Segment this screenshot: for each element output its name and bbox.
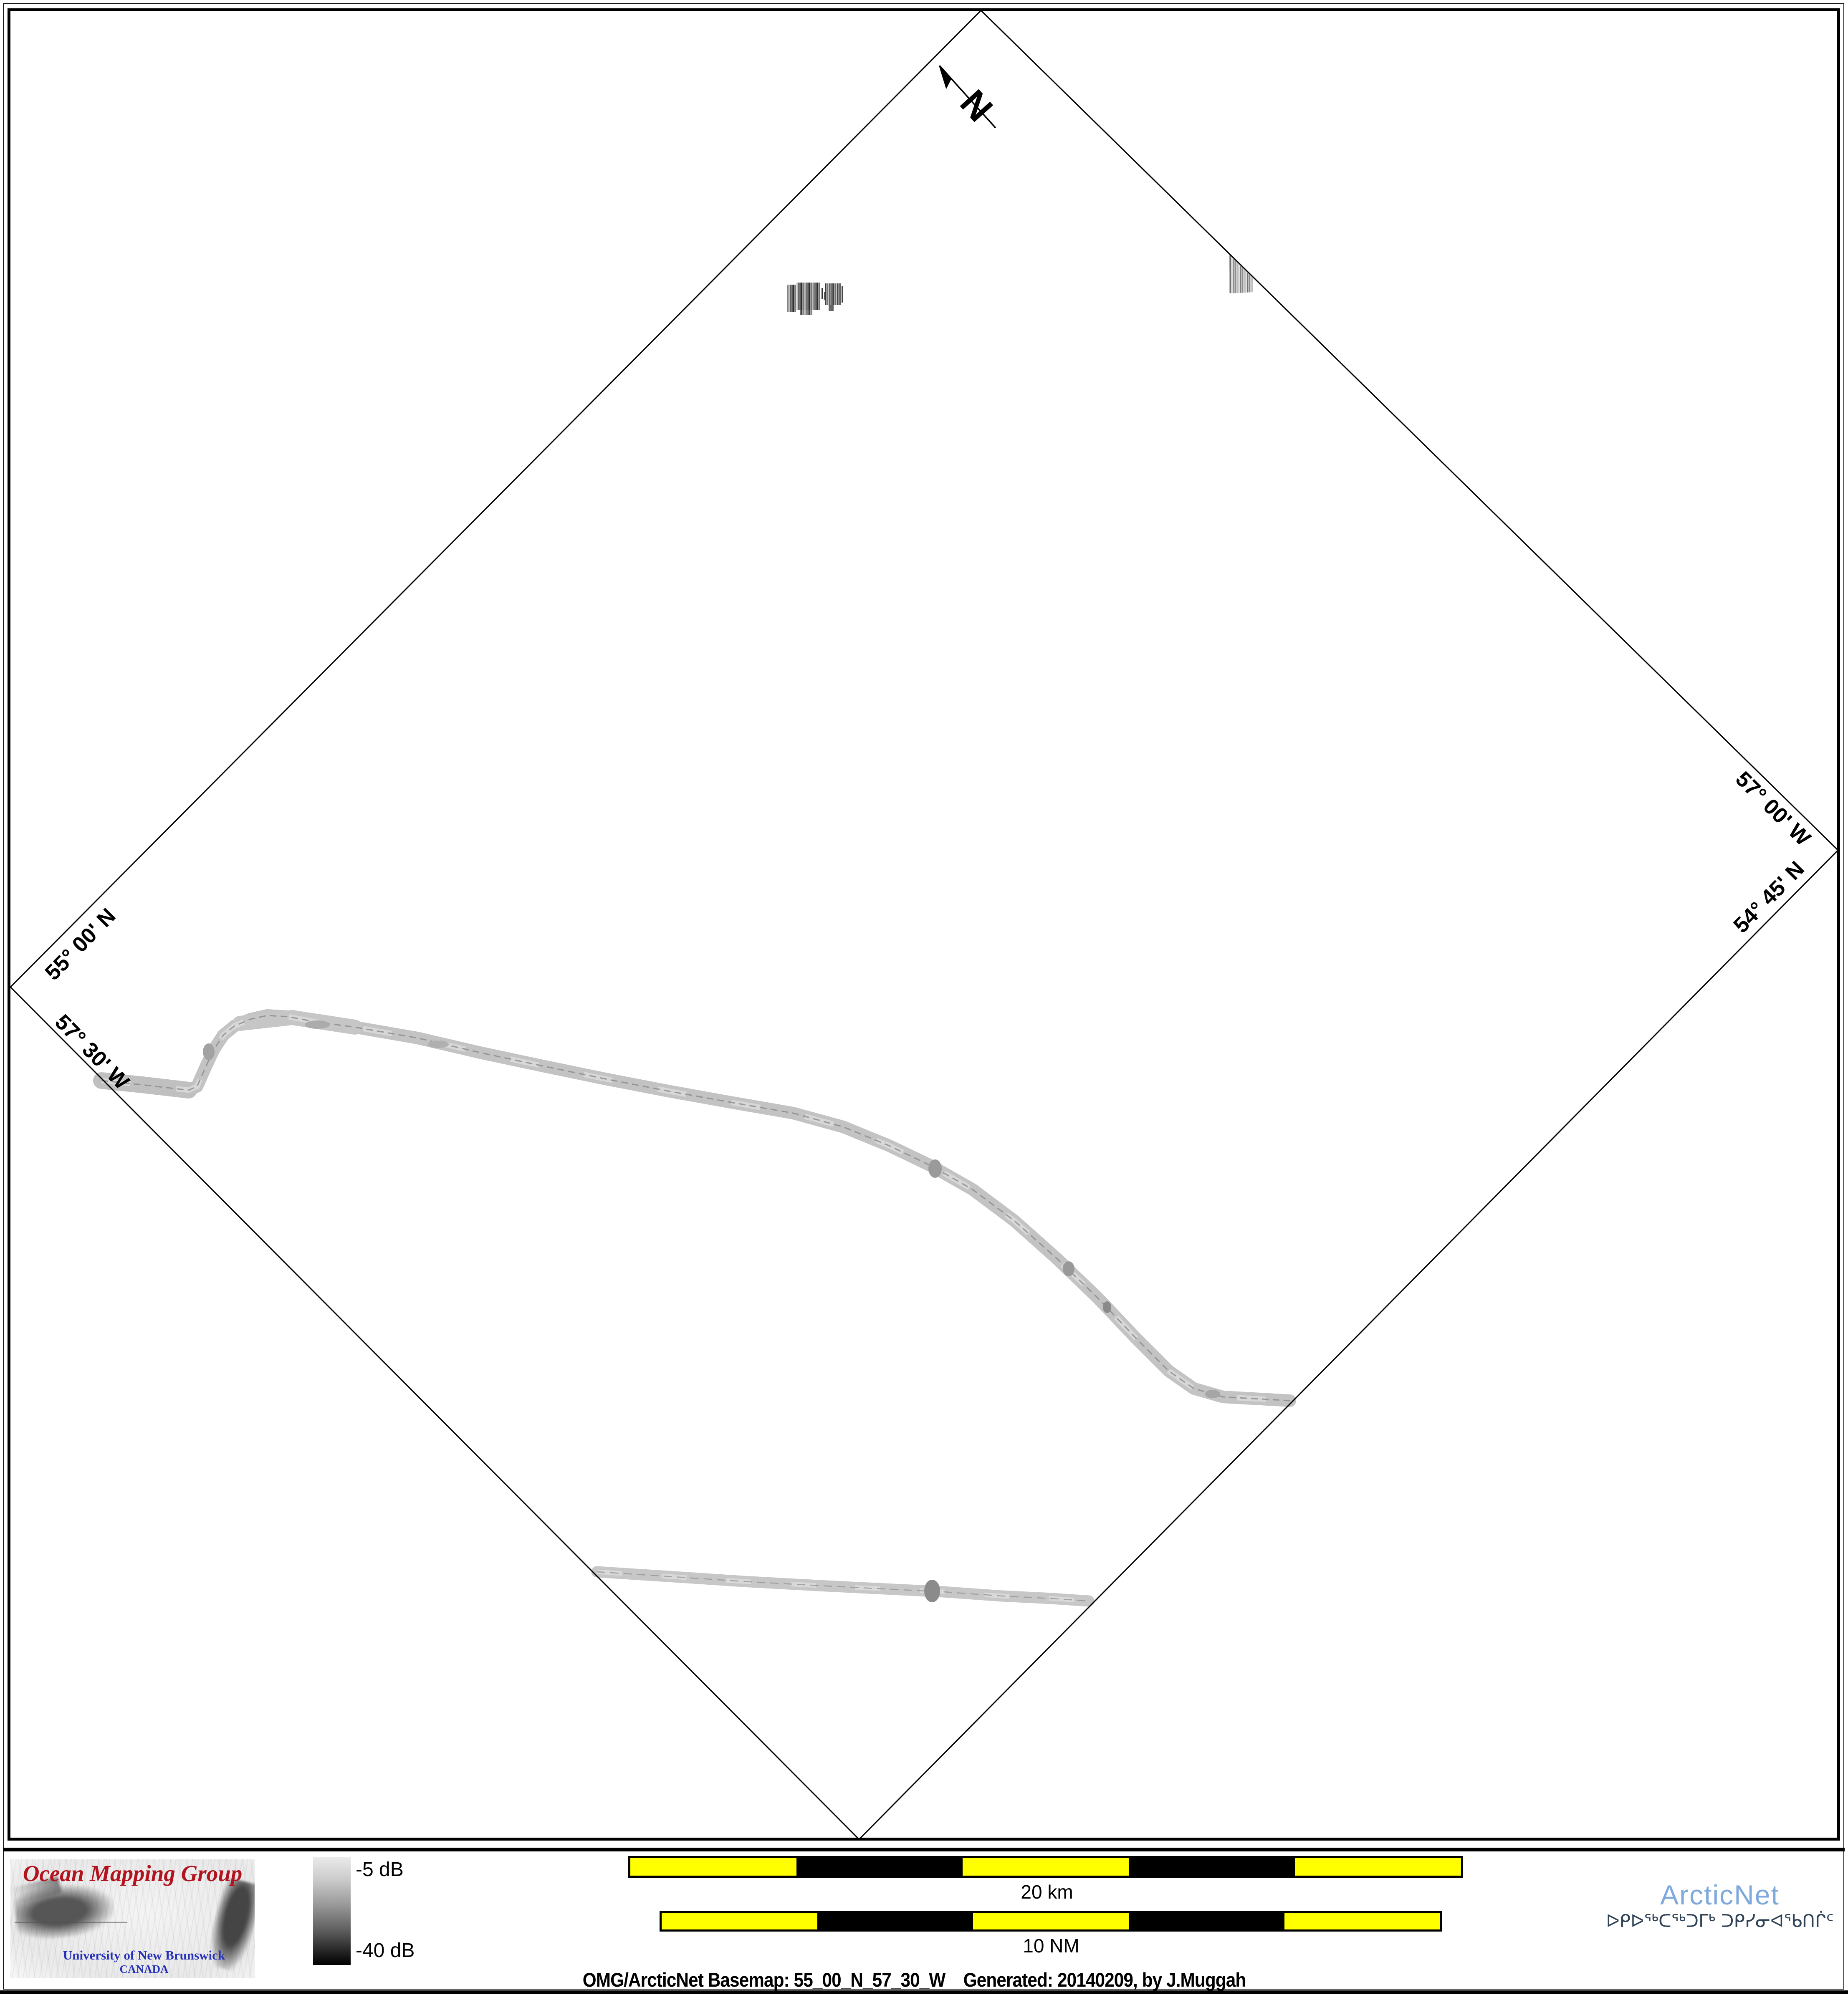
arcticnet-logo: ArcticNet bbox=[1660, 1879, 1780, 1911]
basemap-caption: OMG/ArcticNet Basemap: 55_00_N_57_30_W G… bbox=[583, 1968, 1246, 1991]
scalebar-nautical-miles bbox=[660, 1911, 1442, 1932]
corner-label-south-lat: 54° 45' N bbox=[1729, 857, 1809, 938]
survey-track-main bbox=[101, 1015, 1290, 1401]
scalebar-segment bbox=[973, 1913, 1129, 1929]
omg-logo: Ocean Mapping Group University of New Br… bbox=[10, 1859, 255, 1978]
colorbar-min-label: -40 dB bbox=[356, 1939, 415, 1962]
scalebar-kilometres bbox=[628, 1856, 1463, 1878]
survey-track-lower bbox=[597, 1572, 1089, 1602]
omg-logo-title: Ocean Mapping Group bbox=[23, 1860, 243, 1886]
sidescan-fish-left-graphic bbox=[13, 1880, 116, 1942]
sonar-patch-cluster-left bbox=[787, 283, 825, 315]
scalebar-segment bbox=[817, 1913, 973, 1929]
scalebar-segment bbox=[963, 1858, 1129, 1876]
omg-logo-country: CANADA bbox=[120, 1963, 169, 1976]
logo-scratch-line bbox=[15, 1922, 127, 1923]
scalebar-segment bbox=[1284, 1913, 1440, 1929]
colorbar-max-label: -5 dB bbox=[356, 1858, 404, 1881]
page-bottom-border bbox=[0, 1990, 1848, 1994]
scalebar-km-label: 20 km bbox=[1021, 1881, 1073, 1903]
corner-label-west-lon: 57° 30' W bbox=[50, 1010, 134, 1095]
footer-separator bbox=[3, 1848, 1845, 1851]
graticule-diamond-outline bbox=[10, 10, 1838, 1839]
north-arrow: N bbox=[924, 50, 1011, 141]
scalebar-nm-label: 10 NM bbox=[1023, 1934, 1079, 1957]
scalebar-segment bbox=[630, 1858, 796, 1876]
basemap-page: 55° 00' N 57° 30' W 57° 00' W 54° 45' N … bbox=[0, 0, 1848, 1995]
scalebar-segment bbox=[662, 1913, 817, 1929]
backscatter-colorbar bbox=[313, 1857, 351, 1965]
scalebar-segment bbox=[1129, 1913, 1284, 1929]
scalebar-segment bbox=[1295, 1858, 1461, 1876]
sonar-patch-cluster-mid bbox=[825, 283, 843, 311]
omg-logo-university: University of New Brunswick bbox=[63, 1948, 225, 1963]
scalebar-segment bbox=[1129, 1858, 1295, 1876]
map-canvas: 55° 00' N 57° 30' W 57° 00' W 54° 45' N … bbox=[0, 0, 1848, 1995]
corner-label-east-lon: 57° 00' W bbox=[1731, 767, 1815, 851]
scalebar-segment bbox=[796, 1858, 963, 1876]
arcticnet-inuktitut-text: ᐅᑭᐅᖅᑕᖅᑐᒥᒃ ᑐᑭᓯᓂᐊᖃᑎᒌᑦ bbox=[1606, 1911, 1833, 1931]
